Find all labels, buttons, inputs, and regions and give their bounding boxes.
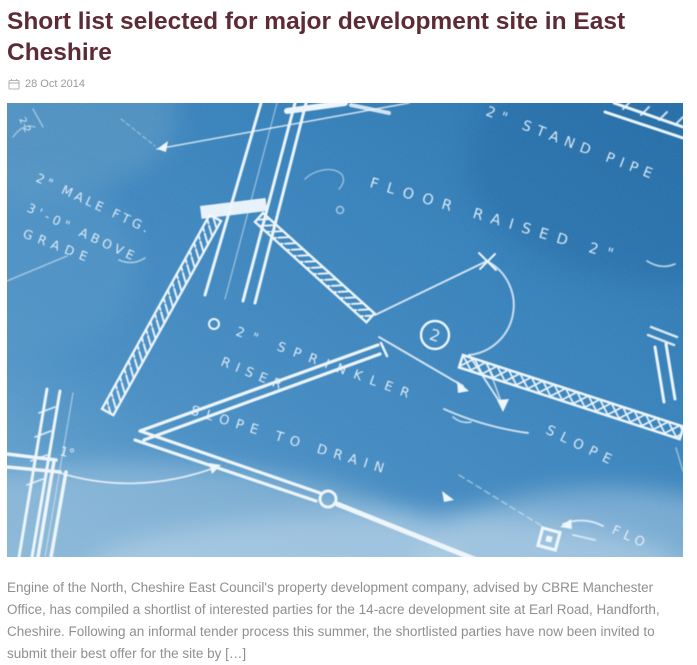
blueprint-image: 2" STAND PIPE FLOOR RAISED 2" 2" MALE FT… xyxy=(7,103,683,557)
post-title[interactable]: Short list selected for major developmen… xyxy=(7,7,679,69)
post-date-row: 28 Oct 2014 xyxy=(8,78,687,90)
article: Short list selected for major developmen… xyxy=(0,0,697,665)
paper-grain xyxy=(7,103,683,557)
post-excerpt: Engine of the North, Cheshire East Counc… xyxy=(7,577,687,665)
featured-image[interactable]: 2" STAND PIPE FLOOR RAISED 2" 2" MALE FT… xyxy=(7,103,683,557)
calendar-icon xyxy=(8,78,20,90)
post-date: 28 Oct 2014 xyxy=(25,78,85,90)
